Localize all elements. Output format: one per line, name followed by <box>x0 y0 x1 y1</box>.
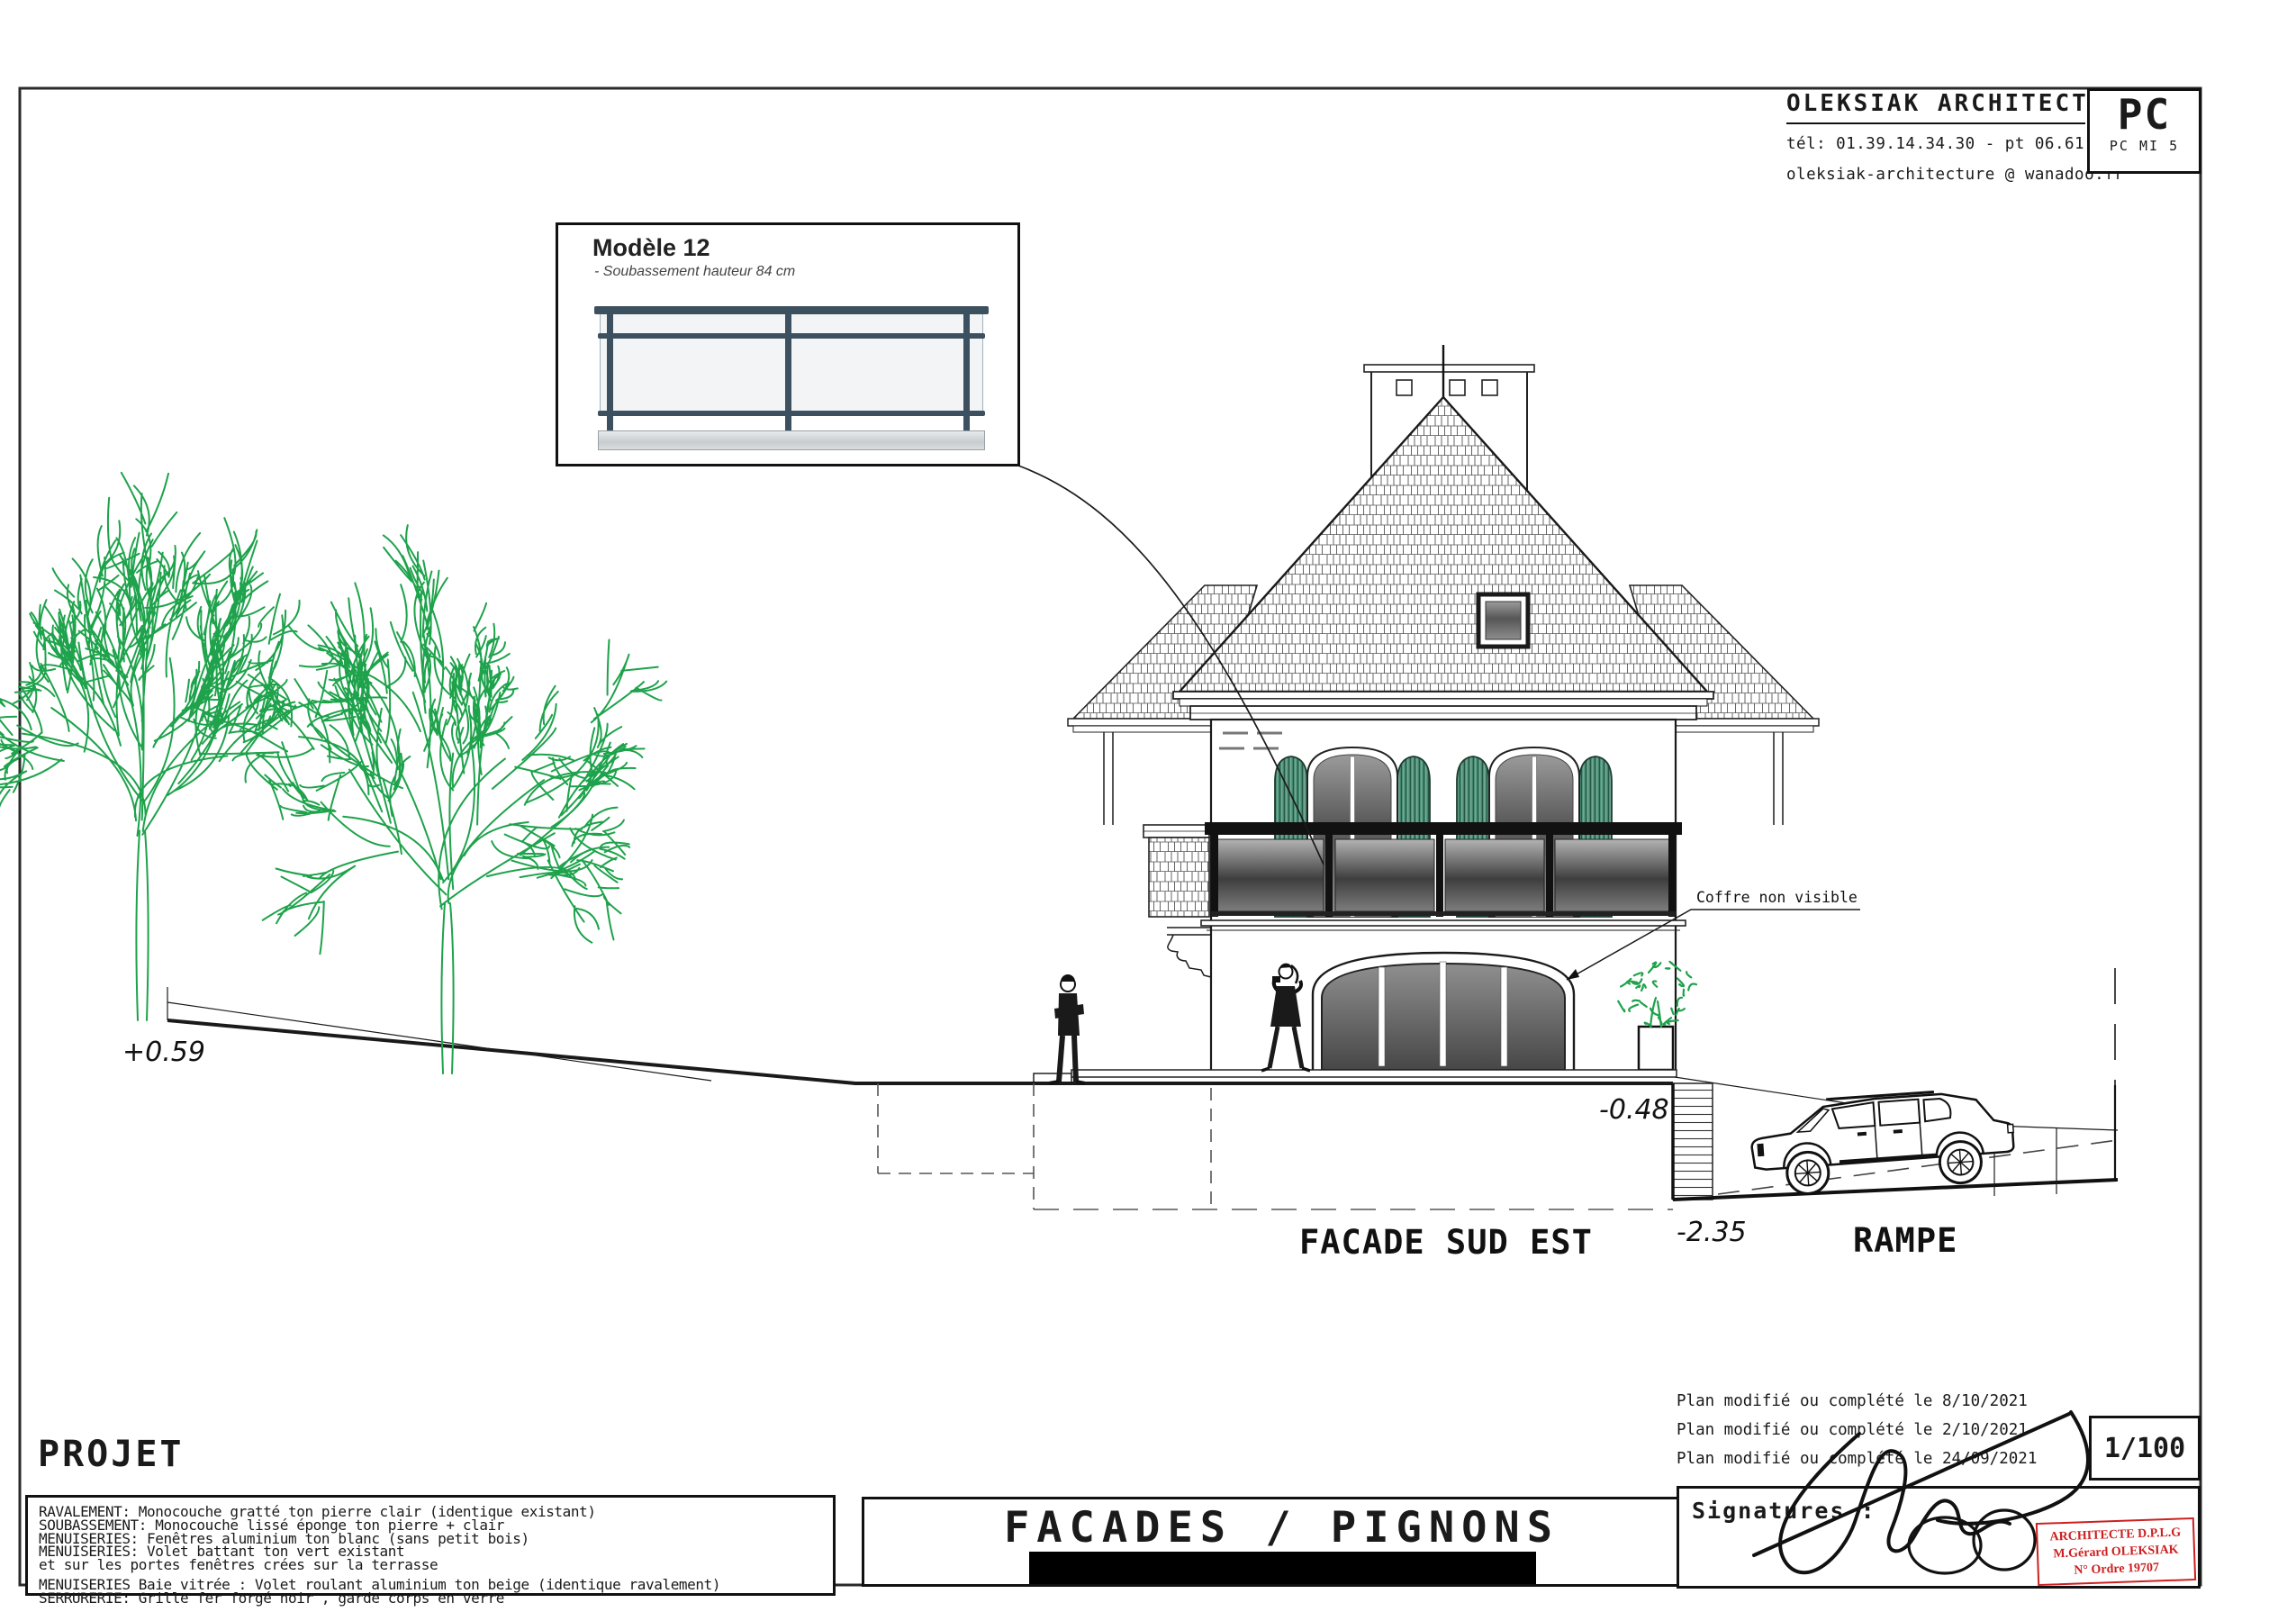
project-spec-box: RAVALEMENT: Monocouche gratté ton pierre… <box>25 1495 836 1596</box>
level-basement: -2.35 <box>1677 1217 1747 1248</box>
sheet-title: FACADES / PIGNONS <box>864 1503 1699 1553</box>
bay-window <box>1313 953 1574 1070</box>
tree-right <box>233 525 667 1073</box>
spec-line: et sur les portes fenêtres crées sur la … <box>39 1559 822 1572</box>
revision-note: Plan modifié ou complété le 24/09/2021 <box>1677 1450 2037 1468</box>
permit-code: PC <box>2090 91 2199 138</box>
person-man <box>1049 974 1085 1083</box>
revision-note: Plan modifié ou complété le 8/10/2021 <box>1677 1392 2028 1410</box>
model-subtitle: - Soubassement hauteur 84 cm <box>594 264 1017 280</box>
firm-name: OLEKSIAK ARCHITECTURE <box>1786 90 2085 124</box>
model-title: Modèle 12 <box>592 234 1017 262</box>
sheet-frame <box>20 88 2201 1585</box>
house-elevation <box>1068 345 1819 1071</box>
tree-left <box>0 473 316 1020</box>
coffre-label: Coffre non visible <box>1696 889 1858 906</box>
drawing-sheet: Coffre non visible FACADE SUD EST RAMPE … <box>0 0 2296 1621</box>
basement-outline <box>878 1083 1673 1209</box>
level-left: +0.59 <box>122 1037 205 1068</box>
car-wheel-rear <box>1939 1140 1983 1184</box>
main-roof <box>1173 397 1713 720</box>
spec-line: SERRURERIE: Grille fer forgé noir , gard… <box>39 1592 822 1606</box>
roof-window <box>1478 594 1528 647</box>
facade-title: FACADE SUD EST <box>1299 1223 1593 1262</box>
permit-ref: PC MI 5 <box>2090 138 2199 154</box>
rampe-label: RAMPE <box>1853 1221 1957 1260</box>
redacted-bar <box>1029 1552 1536 1584</box>
level-terrace: -0.48 <box>1599 1094 1669 1126</box>
project-heading: PROJET <box>38 1434 185 1475</box>
car <box>1749 1087 2016 1198</box>
firm-email: oleksiak-architecture @ wanadoo.fr <box>1786 166 2124 184</box>
ramp-area <box>1673 968 2118 1200</box>
revision-note: Plan modifié ou complété le 2/10/2021 <box>1677 1421 2028 1439</box>
permit-box: PC PC MI 5 <box>2087 88 2201 174</box>
sheet-title-box: FACADES / PIGNONS <box>862 1497 1702 1587</box>
elevation-drawing: Coffre non visible FACADE SUD EST RAMPE … <box>0 0 2296 1621</box>
architect-stamp: ARCHITECTE D.P.L.G M.Gérard OLEKSIAK N° … <box>2036 1517 2196 1586</box>
planter <box>1639 1027 1673 1070</box>
terrace <box>1034 1070 1677 1083</box>
side-balcony-annex <box>1143 825 1211 977</box>
model-detail-box: Modèle 12 - Soubassement hauteur 84 cm <box>556 222 1020 466</box>
car-wheel-front <box>1785 1151 1830 1195</box>
scale-box: 1/100 <box>2089 1416 2201 1481</box>
